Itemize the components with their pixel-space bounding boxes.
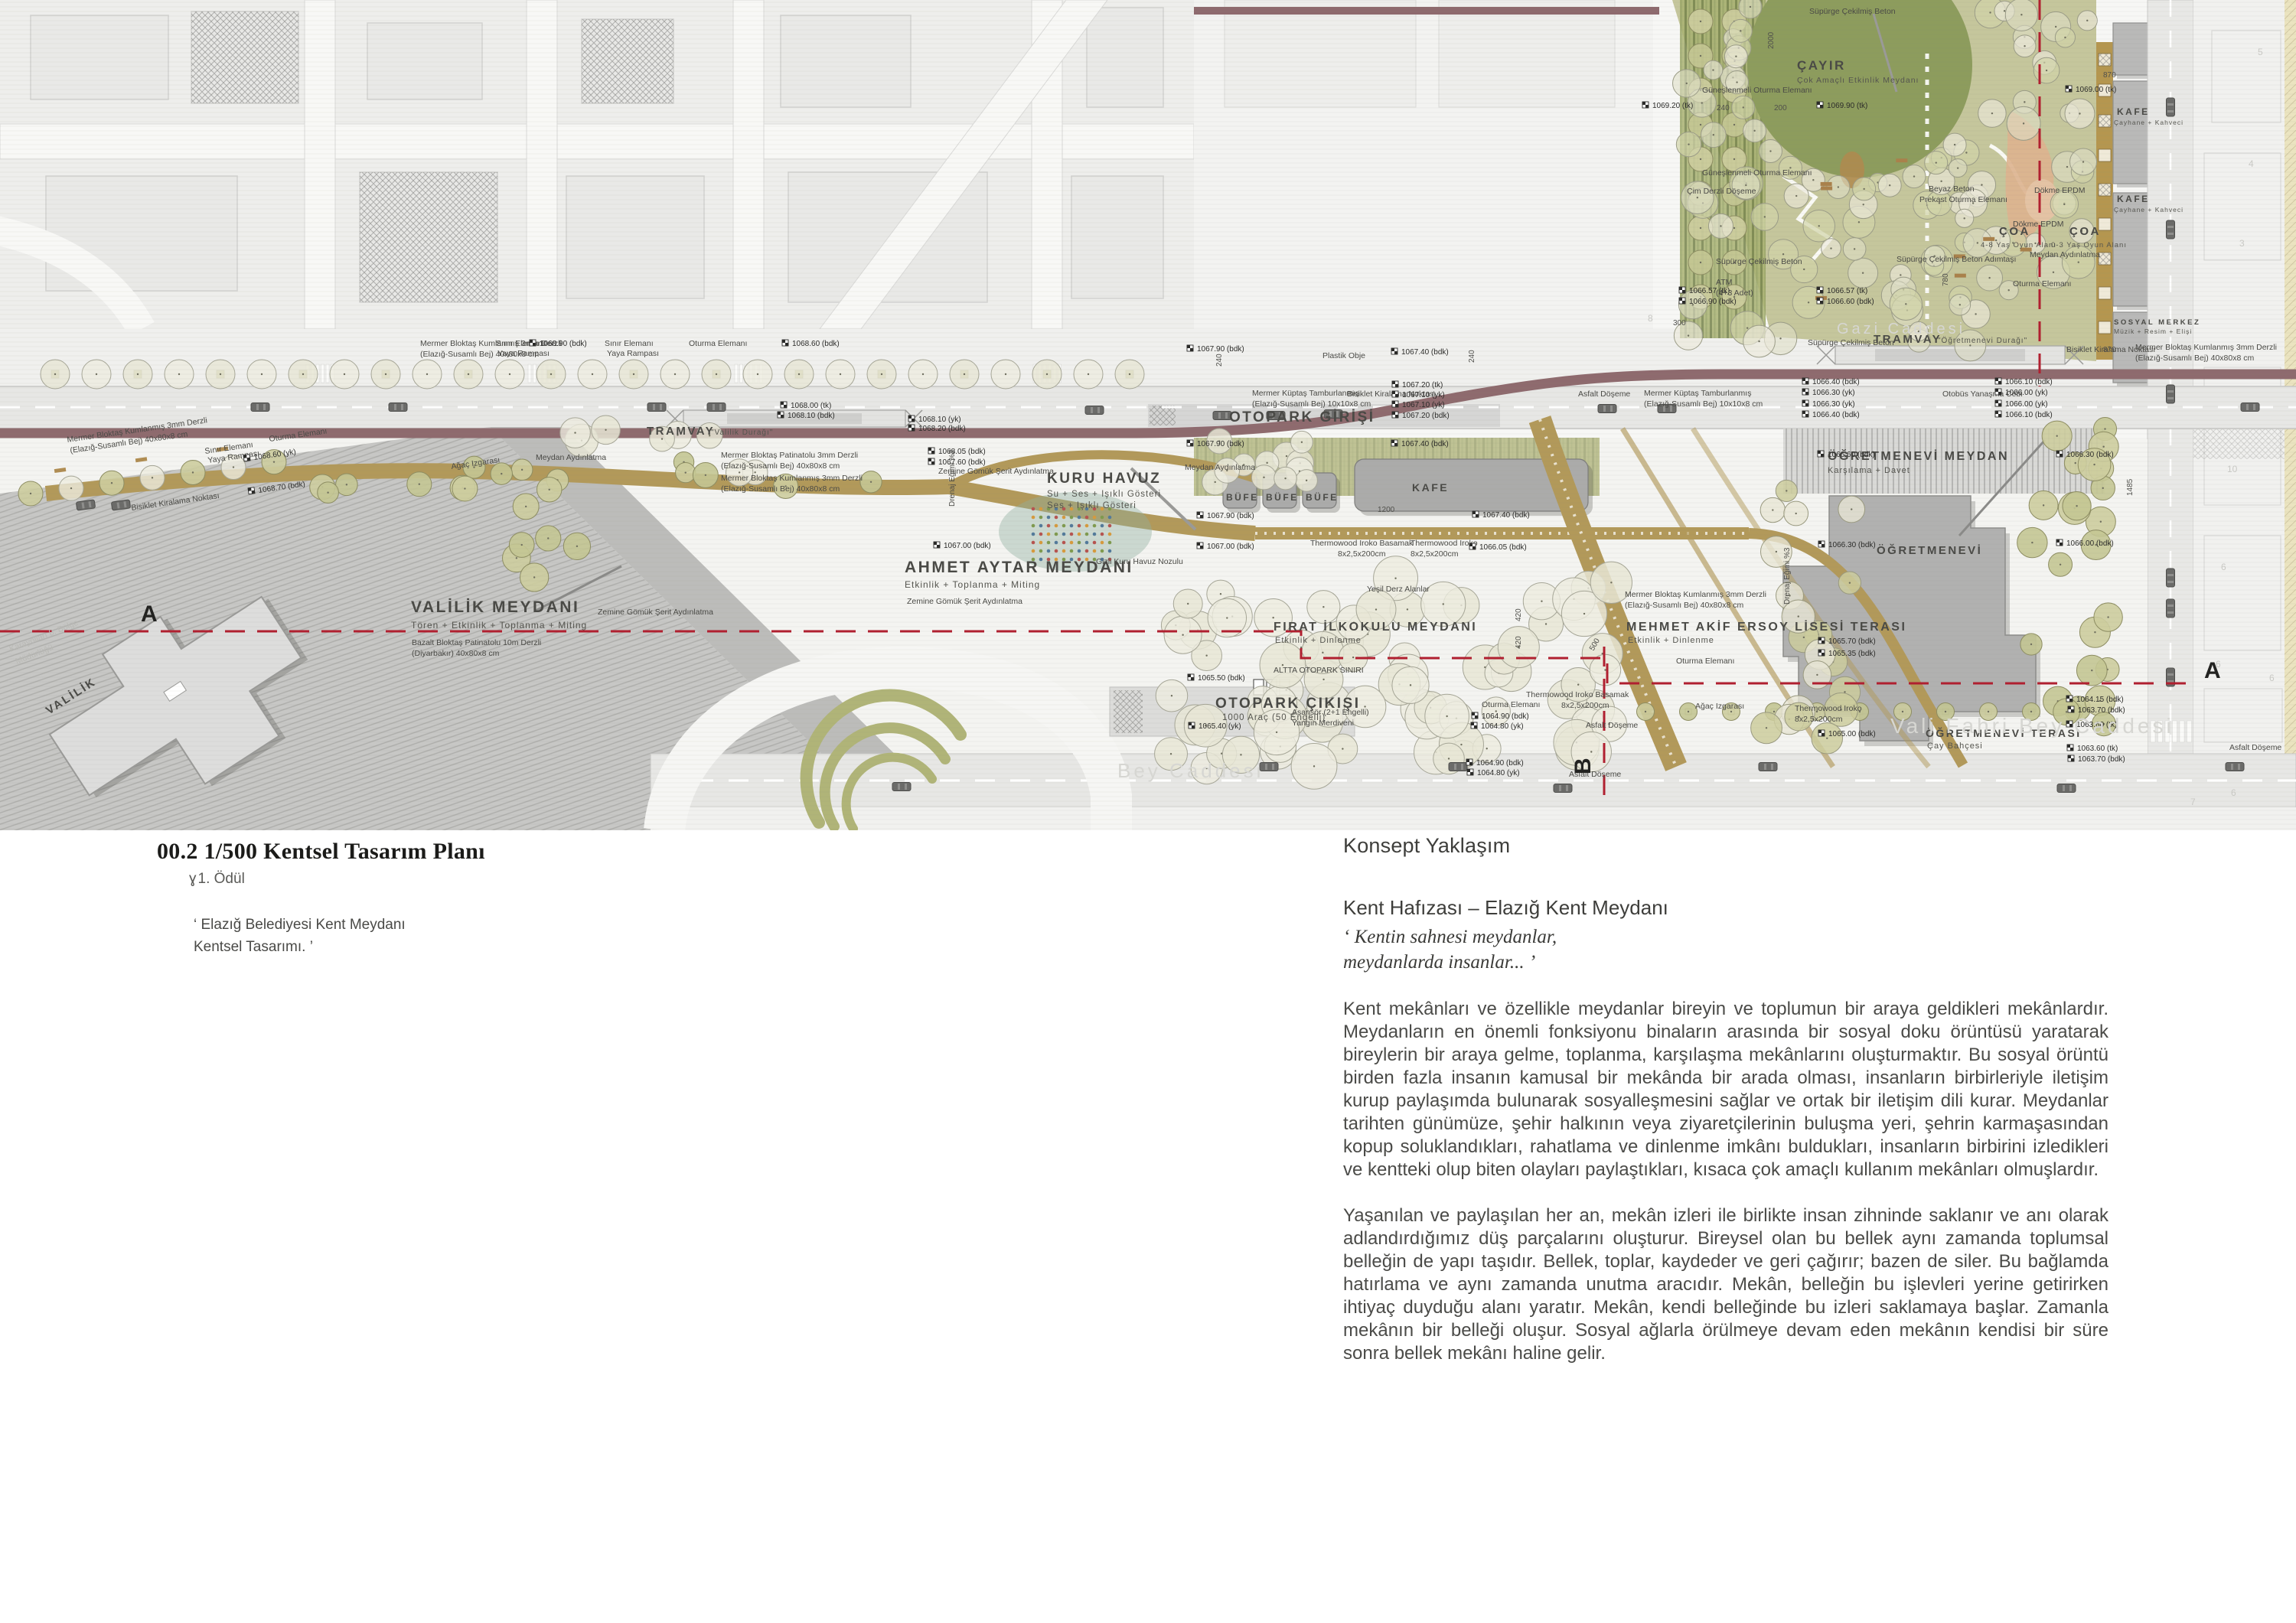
plan-label: Ağaç Izgarası — [1695, 702, 1744, 711]
plan-label: BÜFE — [1266, 491, 1299, 503]
plan-label: KURU HAVUZ — [1047, 471, 1161, 487]
plan-label: 420 — [1515, 636, 1523, 649]
plan-label: 1066.30 (yk) — [1812, 389, 1855, 397]
plan-label: Mermer Küptaş Tamburlanmış — [1644, 389, 1751, 398]
client-line-1: ‘ Elazığ Belediyesi Kent Meydanı — [194, 914, 631, 936]
plan-label: FIRAT İLKOKULU MEYDANI — [1274, 620, 1477, 634]
plan-label: 1069.20 (tk) — [1652, 102, 1693, 110]
plan-label: Sınır Elemanı — [496, 339, 545, 348]
plan-label: 1068.05 (bdk) — [938, 448, 986, 456]
award-icon: ɣ — [189, 871, 197, 887]
plan-label: Yaya Rampası — [607, 349, 659, 358]
quote-line-2: meydanlarda insanlar... ’ — [1343, 950, 2108, 975]
plan-label: 1067.60 (bdk) — [938, 458, 986, 467]
plan-label: 1064.90 (bdk) — [1482, 712, 1529, 721]
plan-label: 1065.40 (yk) — [1199, 722, 1241, 731]
plan-label: A — [141, 601, 158, 627]
plan-label: 6 — [2221, 562, 2226, 572]
plan-label: Güneşlenmeli Oturma Elemanı — [1702, 168, 1812, 178]
plan-label: 1064.15 (bdk) — [2076, 696, 2124, 704]
plan-label: 8x2,5x200cm — [1411, 549, 1459, 559]
plan-label: Süpürge Çekilmiş Beton — [1808, 338, 1894, 347]
plan-label: 6 — [2269, 673, 2275, 683]
plan-label: 1069.90 (tk) — [1827, 102, 1867, 110]
plan-label: OTOPARK GİRİŞİ — [1229, 409, 1375, 425]
plan-label: 1066.00 (yk) — [2005, 400, 2048, 409]
plan-label: 1069.00 (tk) — [2076, 86, 2116, 94]
plan-label: (Elazığ-Susamlı Bej) 10x10x8 cm — [1644, 399, 1763, 409]
plan-label: 1068.90 (bdk) — [540, 340, 587, 348]
plan-label: 8 — [1648, 313, 1653, 324]
plan-label: BÜFE — [1306, 491, 1339, 503]
award-text: 1. Ödül — [198, 871, 245, 887]
client-line: ‘ Elazığ Belediyesi Kent Meydanı Kentsel… — [194, 914, 631, 959]
plan-label: 1068.60 (bdk) — [792, 340, 840, 348]
plan-label: KAFE — [2117, 106, 2150, 117]
plan-label: Vali Fahri Bey Caddesi — [1890, 714, 2174, 738]
plan-label: KAFE — [1412, 481, 1449, 494]
plan-label: Etkinlik + Toplanma + Miting — [905, 579, 1040, 590]
concept-heading: Konsept Yaklaşım — [1343, 834, 2108, 858]
plan-label: 1066.05 (bdk) — [1479, 543, 1527, 552]
plan-label: 1065.00 (bdk) — [1828, 730, 1876, 738]
plan-label: 1067.00 (bdk) — [944, 542, 991, 550]
plan-label: 1066.00 (yk) — [2005, 389, 2048, 397]
plan-label: Karşılama + Davet — [1828, 466, 1910, 475]
plan-label: Mermer Bloktaş Kumlanmış 3mm Derzli — [721, 474, 863, 483]
plan-label: Dökme EPDM — [2034, 186, 2086, 195]
plan-label: Çim Derzli Döşeme — [1687, 187, 1756, 196]
award-line: ɣ1. Ödül — [189, 871, 631, 888]
plan-label: 1066.40 (bdk) — [1812, 378, 1860, 386]
plan-label: Thermowood Iroko — [1411, 539, 1478, 548]
plan-label: Asfalt Döşeme — [2229, 743, 2281, 752]
plan-label: (Elazığ-Susamlı Bej) 10x10x8 cm — [1252, 399, 1371, 409]
plan-label: Gizli Kuru Havuz Nozulu — [1096, 557, 1183, 566]
plan-label: 1065.35 (bdk) — [1828, 650, 1876, 658]
plan-label: 3 — [2239, 238, 2245, 249]
plan-caption: 00.2 1/500 Kentsel Tasarım Planı ɣ1. Ödü… — [157, 839, 631, 959]
plan-title: 00.2 1/500 Kentsel Tasarım Planı — [157, 839, 631, 865]
plan-label: 240 — [1468, 350, 1476, 363]
plan-label: 1067.10 (yk) — [1402, 401, 1445, 409]
plan-label: ÇOA — [2069, 225, 2101, 238]
plan-label: Tören + Etkinlik + Toplanma + Miting — [411, 620, 587, 631]
plan-label: 200 — [1774, 104, 1787, 112]
plan-label: 1064.80 (yk) — [1477, 769, 1520, 777]
plan-label: 1066.10 (bdk) — [2005, 378, 2053, 386]
concept-quote: ‘ Kentin sahnesi meydanlar, meydanlarda … — [1343, 924, 2108, 975]
plan-label: 1064.90 (bdk) — [1476, 759, 1524, 768]
client-line-2: Kentsel Tasarımı. ’ — [194, 936, 631, 958]
plan-label: Bazalt Bloktaş Patinatolu 10m Derzli — [412, 638, 541, 647]
plan-label: 1067.10 (yk) — [1402, 391, 1445, 399]
plan-label: 1066.30 (yk) — [1812, 400, 1855, 409]
plan-label: Oturma Elemanı — [1482, 700, 1540, 709]
plan-label: 420 — [1515, 608, 1523, 621]
plan-label: Plastik Obje — [1322, 351, 1365, 360]
plan-label: (Elazığ-Susamlı Bej) 40x80x8 cm — [721, 484, 840, 494]
plan-label: 8x2,5x200cm — [1338, 549, 1386, 559]
plan-label: 1485 — [2126, 478, 2135, 496]
plan-label: SOSYAL MERKEZ — [2114, 318, 2200, 327]
plan-label: Gazi Caddesi — [1837, 321, 1965, 337]
plan-label: 870 — [2103, 346, 2116, 354]
plan-label: Asansör (2+1 Engelli) — [1292, 708, 1369, 717]
plan-label: Çayhane + Kahveci — [2114, 119, 2183, 126]
plan-label: Su + Ses + Işıklı Gösteri — [1047, 490, 1161, 499]
plan-label: Çay Bahçesi — [1927, 741, 1983, 751]
plan-label: 1063.60 (tk) — [2077, 745, 2118, 753]
plan-label: ATM — [1716, 278, 1732, 287]
plan-label: Mermer Bloktaş Kumlanmış 3mm Derzli — [2135, 343, 2277, 352]
plan-label: 1064.80 (yk) — [1481, 722, 1524, 731]
plan-label: Müzik + Resim + Elişi — [2114, 328, 2192, 335]
plan-label: ALTTA OTOPARK SINIRI — [1274, 666, 1364, 675]
plan-label: BÜFE — [1226, 491, 1259, 503]
concept-text-block: Konsept Yaklaşım Kent Hafızası – Elazığ … — [1343, 834, 2108, 1365]
plan-label: Mermer Küptaş Tamburlanmış — [1252, 389, 1359, 398]
plan-label: Mermer Bloktaş Patinatolu 3mm Derzli — [721, 451, 858, 460]
plan-label: Süpürge Çekilmiş Beton Adımtaşı — [1896, 255, 2016, 264]
plan-label: 1066.30 (bdk) — [1828, 541, 1876, 549]
plan-label: Bey Caddesi — [1117, 759, 1264, 782]
plan-label: Süpürge Çekilmiş Beton — [1716, 257, 1802, 266]
plan-label: (Elazığ-Susamlı Bej) 40x80x8 cm — [2135, 354, 2254, 363]
plan-label: Drenaj Eğimi %3 — [1783, 547, 1792, 605]
plan-label: Yeşil Derz Alanlar — [1367, 585, 1430, 594]
plan-label: 2000 — [1767, 31, 1776, 49]
plan-label: 240 — [1717, 104, 1730, 112]
plan-label: Meydan Aydınlatma — [536, 453, 606, 462]
plan-label: 1067.20 (tk) — [1402, 381, 1443, 389]
plan-label: 1068.00 (tk) — [791, 402, 831, 410]
plan-label: Meydan Aydınlatma — [2030, 250, 2100, 259]
plan-label: (Elazığ-Susamlı Bej) 40x80x8 cm — [721, 461, 840, 471]
plan-label: ÇAYIR — [1797, 58, 1846, 73]
plan-label: Çayhane + Kahveci — [2114, 206, 2183, 213]
plan-label: (Diyarbakır) 40x80x8 cm — [412, 649, 500, 658]
plan-label: 1066.30 (bdk) — [2066, 451, 2114, 459]
plan-label: ÖĞRETMENEVİ — [1877, 543, 1982, 557]
plan-label: 1066.90 (bdk) — [1689, 298, 1737, 306]
plan-label: "Valilik Durağı" — [711, 429, 773, 437]
plan-label: 8x2,5x200cm — [1795, 715, 1843, 724]
plan-label: 6 — [2231, 787, 2236, 798]
plan-label: 870 — [2103, 71, 2116, 80]
plan-label: 1067.90 (bdk) — [1197, 440, 1244, 448]
plan-label: 1067.40 (bdk) — [1482, 511, 1530, 520]
plan-label: 1068.10 (yk) — [918, 416, 961, 424]
plan-label: Ses + Işıklı Gösteri — [1047, 501, 1137, 510]
plan-label: 780 — [1942, 273, 1950, 286]
page: { "caption": { "title": "00.2 1/500 Kent… — [0, 0, 2296, 1623]
plan-label: Süpürge Çekilmiş Beton — [1809, 7, 1896, 16]
plan-label: Asfalt Döşeme — [1578, 389, 1630, 399]
plan-label: Güneşlenmeli Oturma Elemanı — [1702, 86, 1812, 95]
plan-label: 1066.57 (tk) — [1827, 287, 1867, 295]
plan-label: VALİLİK MEYDANI — [411, 598, 579, 616]
plan-label: Zemine Gömük Şerit Aydınlatma — [598, 608, 713, 617]
plan-label: MEHMET AKİF ERSOY LİSESİ TERASI — [1626, 620, 1906, 634]
plan-label: 4 — [2249, 158, 2254, 169]
print-texture — [0, 0, 2296, 830]
plan-label: 1066.60 (bdk) — [1828, 451, 1875, 459]
plan-label: Oturma Elemanı — [2013, 279, 2071, 288]
plan-label: 1066.57 (tk) — [1689, 287, 1730, 295]
plan-label: 1066.00 (bdk) — [2066, 539, 2114, 548]
plan-label: A — [2204, 658, 2221, 683]
plan-label: 8x2,5x200cm — [1561, 701, 1609, 710]
plan-label: 1066.60 (bdk) — [1827, 298, 1874, 306]
plan-label: 1067.20 (bdk) — [1402, 412, 1450, 420]
plan-label: 1200 — [1378, 506, 1395, 514]
plan-label: 1066.10 (bdk) — [2005, 411, 2053, 419]
plan-label: Mermer Bloktaş Kumlanmış 3mm Derzli — [1625, 590, 1766, 599]
plan-label: 1067.40 (bdk) — [1401, 348, 1449, 357]
plan-label: (Elazığ-Susamlı Bej) 40x80x8 cm — [1625, 601, 1743, 610]
site-plan: VALİLİK MEYDANITören + Etkinlik + Toplan… — [0, 0, 2296, 830]
plan-label: Thermowood Iroko Basamak — [1310, 539, 1414, 548]
plan-label: 0-3 Yaş Oyun Alanı — [2051, 241, 2127, 249]
plan-label: 1067.90 (bdk) — [1197, 345, 1244, 354]
concept-paragraph-1: Kent mekânları ve özellikle meydanlar bi… — [1343, 998, 2108, 1181]
concept-subheading: Kent Hafızası – Elazığ Kent Meydanı — [1343, 896, 2108, 920]
plan-label: 1065.50 (bdk) — [1198, 674, 1245, 683]
plan-label: Thermowood Iroko — [1795, 704, 1862, 713]
plan-label: Zemine Gömük Şerit Aydınlatma — [907, 597, 1022, 606]
concept-paragraph-2: Yaşanılan ve paylaşılan her an, mekân iz… — [1343, 1204, 2108, 1365]
plan-label: 1066.40 (bdk) — [1812, 411, 1860, 419]
plan-label: 7 — [2190, 797, 2196, 807]
plan-label: 10 — [2227, 464, 2238, 474]
plan-label: Thermowood Iroko Basamak — [1526, 690, 1629, 699]
plan-label: Yaya Rampası — [497, 349, 550, 358]
plan-label: 5 — [2258, 47, 2263, 57]
plan-label: Beyaz Beton — [1929, 184, 1975, 194]
plan-label: KAFE — [2117, 194, 2150, 204]
plan-label: 1067.00 (bdk) — [1207, 543, 1254, 551]
plan-label: Oturma Elemanı — [1676, 657, 1734, 666]
plan-label: 1068.10 (bdk) — [788, 412, 835, 420]
plan-label: 1067.90 (bdk) — [1207, 512, 1254, 520]
plan-label: Asfalt Döşeme — [1586, 721, 1638, 730]
quote-line-1: ‘ Kentin sahnesi meydanlar, — [1343, 924, 2108, 950]
plan-label: 4-8 Yaş Oyun Alanı — [1981, 241, 2056, 249]
plan-label: 240 — [1215, 354, 1224, 367]
plan-label: Meydan Aydınlatma — [1185, 463, 1255, 472]
plan-label: Sınır Elemanı — [605, 339, 654, 348]
plan-label: Prekast Oturma Elemanı — [1919, 195, 2007, 204]
plan-label: Çok Amaçlı Etkinlik Meydanı — [1797, 76, 1919, 85]
plan-label: Yangın Merdiveni — [1292, 719, 1354, 728]
plan-label: TRAMVAY — [647, 425, 715, 438]
plan-label: 300 — [1673, 319, 1686, 328]
plan-label: 1068.20 (bdk) — [918, 425, 966, 433]
plan-label: Oturma Elemanı — [689, 339, 747, 348]
plan-label: 1067.40 (bdk) — [1401, 440, 1449, 448]
plan-label: Etkinlik + Dinlenme — [1628, 636, 1714, 645]
plan-label: B — [1570, 758, 1596, 774]
plan-label: Dökme EPDM — [2013, 220, 2064, 229]
plan-label: Etkinlik + Dinlenme — [1275, 636, 1362, 645]
plan-label: 1063.70 (bdk) — [2078, 755, 2125, 764]
plan-label: 1065.70 (bdk) — [1828, 637, 1876, 646]
